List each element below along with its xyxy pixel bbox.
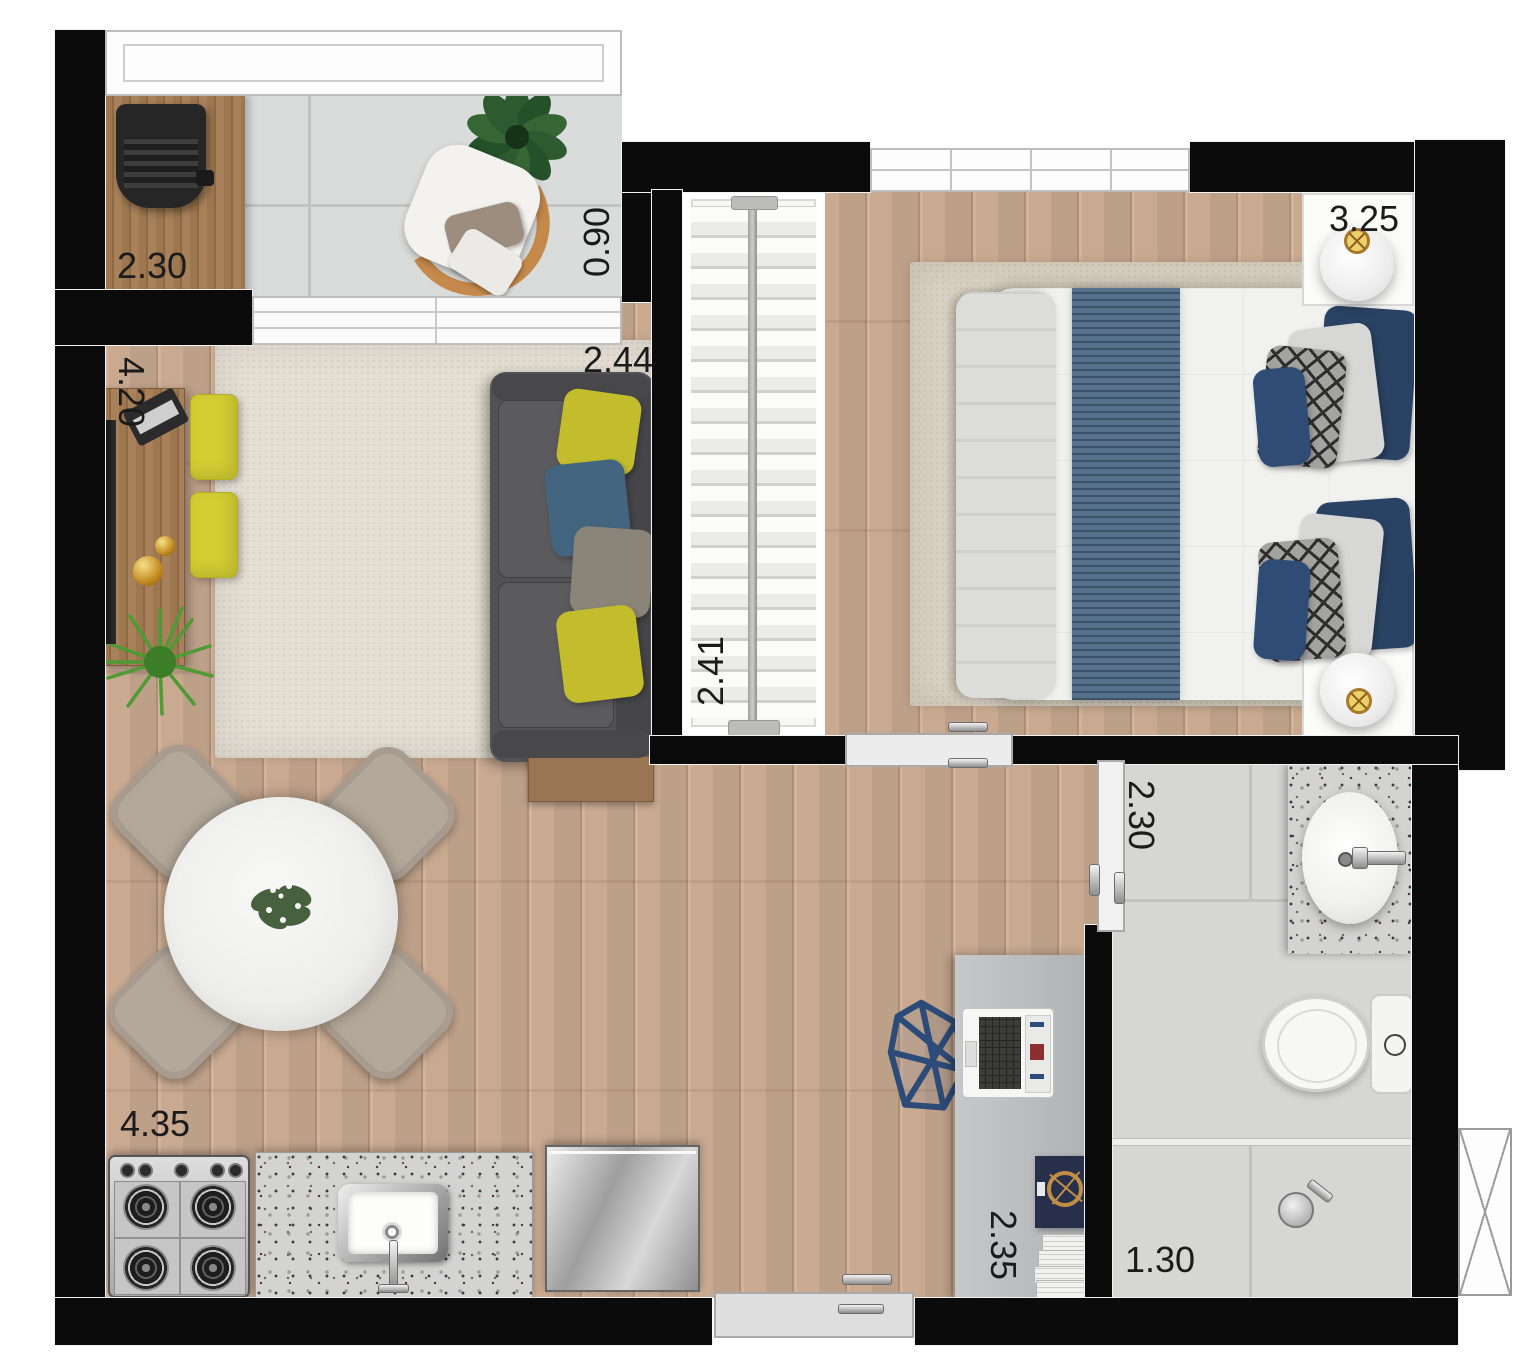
wardrobe-rail-cap [731,196,778,210]
decor-sphere-small [155,536,175,556]
grill-ridges [124,138,198,188]
wardrobe-rail-cap [728,720,780,736]
sink-drain [1338,852,1353,867]
bedroom-door-handle [948,758,988,768]
laptop-keyboard [979,1017,1021,1089]
kitchen-faucet-base [382,1222,402,1242]
dim-wardrobe-length: 2.41 [690,636,732,706]
side-table-wood [528,756,654,802]
dim-living-length: 4.20 [110,357,152,427]
wall-bedroom-divider-right [1012,736,1458,764]
laptop [962,1008,1054,1098]
laptop-trackpad [965,1041,977,1067]
decor-sphere-large [133,556,163,586]
stove-burner [190,1184,236,1230]
stove-burner [123,1184,169,1230]
wall-bedroom-divider-left [650,736,850,764]
railing-inner-frame [123,44,604,82]
window-tick [1030,150,1032,190]
dim-kitchen-wall: 4.35 [120,1103,190,1145]
throw-pillow-yellow [555,603,646,704]
shower-glass-partition [1112,1139,1412,1145]
bedroom-window [870,148,1190,192]
stove-knob [120,1163,135,1178]
bathroom-tile-line [1249,764,1252,902]
entry-door-handle [838,1304,884,1314]
wall-right-upper [1415,140,1505,770]
window-tick [1110,150,1112,190]
pouf [190,492,238,578]
dim-desk-wall: 2.35 [982,1210,1024,1280]
lamp-finial-icon [1346,688,1372,714]
wall-balcony-living-divider [55,290,252,345]
wall-right-lower [1412,764,1458,1345]
wardrobe-rail [748,198,757,728]
shower-head-icon [1278,1192,1314,1228]
bed-pillow-navy-lumbar [1253,558,1312,661]
entry-door [714,1292,914,1338]
stove-burner [123,1245,169,1291]
bed-foot-blanket [956,292,1056,698]
grill-knob [196,170,214,186]
gas-stove [108,1155,250,1298]
slider-track-line [254,327,620,329]
slider-track-line [254,311,620,313]
laptop-side-panel [1025,1015,1051,1093]
refrigerator [545,1145,700,1292]
bathroom-tile-line [1249,1146,1252,1298]
toilet-flush-button [1384,1034,1406,1056]
pouf [190,394,238,480]
wall-bedroom-top-left [622,142,870,192]
wall-closet-left [652,190,682,756]
stove-knob [210,1163,225,1178]
toilet-seat-line [1277,1009,1357,1083]
faucet-head [1352,847,1368,869]
bathroom-door-handle [1114,872,1125,904]
shaft-window-x [1458,1128,1512,1296]
wall-bottom-right [915,1298,1458,1345]
bed-runner [1072,288,1180,700]
book-title-mark [1037,1182,1045,1196]
dim-balcony-counter: 2.30 [117,245,187,287]
kitchen-faucet-handle [378,1284,409,1293]
window-tick [950,150,952,190]
wall-bottom-left [55,1298,712,1345]
stove-knob [138,1163,153,1178]
stove-knob [174,1163,189,1178]
stove-burner [190,1245,236,1291]
dim-living-width: 2.44 [583,339,653,381]
bedroom-door-handle [948,722,988,732]
wall-left [55,30,105,1345]
toilet-bowl [1262,996,1370,1092]
bed-pillow-navy-lumbar [1252,366,1312,468]
centerpiece-plant-icon [243,866,321,944]
dim-bathroom-length: 2.30 [1120,780,1162,850]
floor-plan: 2.30 0.90 4.20 2.44 3.25 2.41 2.30 4.35 … [0,0,1528,1355]
balcony-railing-window [105,30,622,96]
refrigerator-top-trim [549,1151,696,1154]
dim-balcony-depth: 0.90 [576,207,618,277]
stove-knob [228,1163,243,1178]
sofa-armrest [492,730,650,758]
entry-door-handle [842,1274,892,1285]
dim-bedroom-width: 3.25 [1329,198,1399,240]
throw-pillow-gray [569,525,655,618]
bathroom-door-handle [1089,864,1100,896]
slider-divider [435,298,437,343]
balcony-sliding-door [252,296,622,345]
grass-plant-icon [100,602,220,722]
barbecue-grill [116,104,206,208]
wall-bathroom-left [1085,925,1112,1345]
dim-shower-width: 1.30 [1125,1239,1195,1281]
kitchen-faucet-stem [389,1240,398,1290]
